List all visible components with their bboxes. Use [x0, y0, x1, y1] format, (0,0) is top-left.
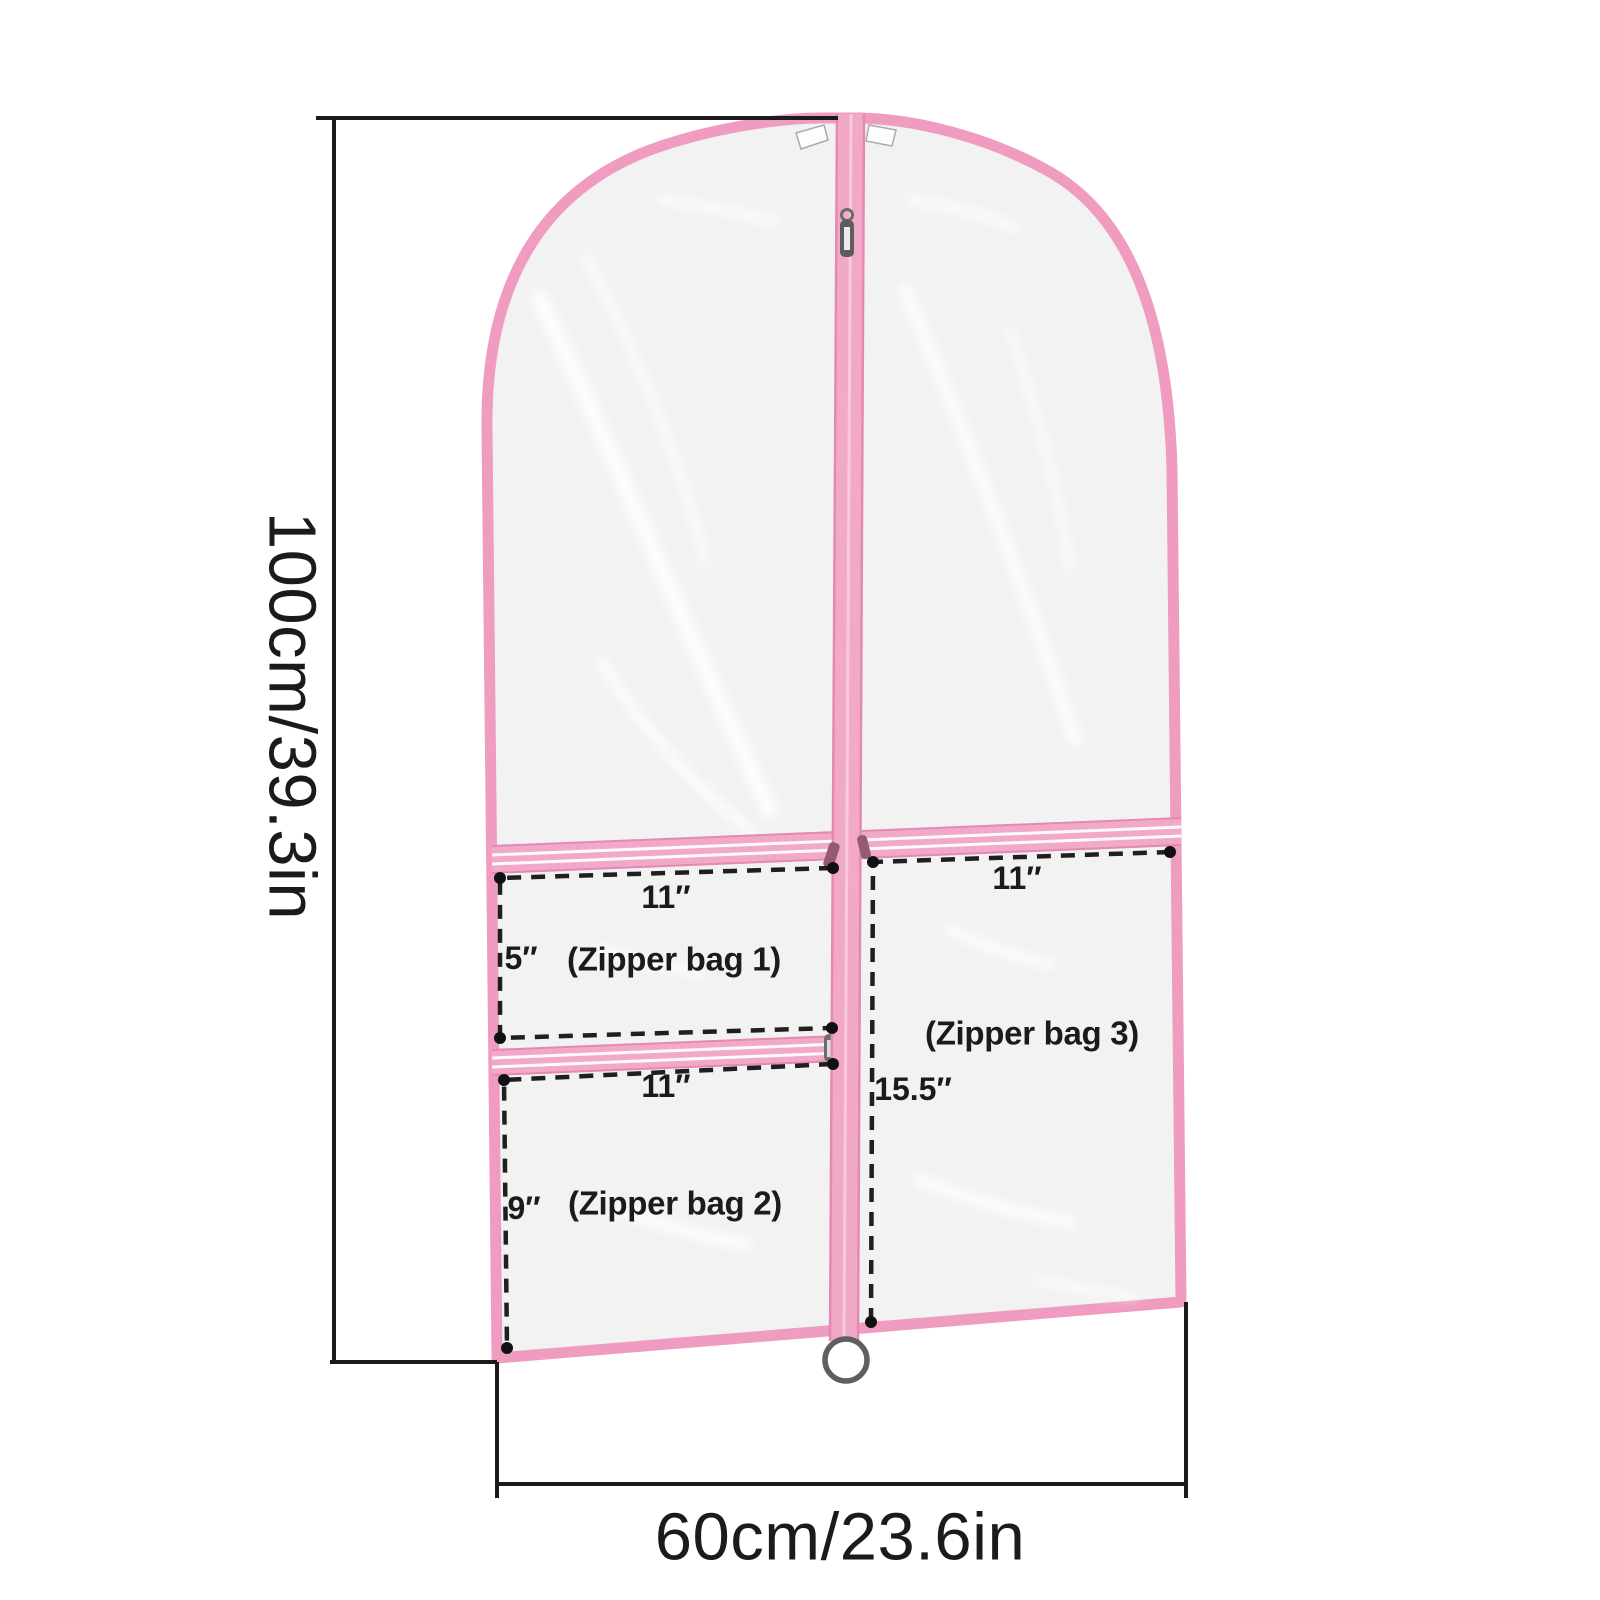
- pocket-3-width-label: 11″: [992, 862, 1041, 894]
- pocket-2-name-label: (Zipper bag 2): [568, 1187, 782, 1220]
- bottom-zipper-ring-pull: [825, 1339, 867, 1381]
- diagram-canvas: [0, 0, 1600, 1600]
- pocket-1-height-label: 5″: [504, 942, 537, 974]
- pocket-1-name-label: (Zipper bag 1): [567, 943, 781, 976]
- pocket-2-width-label: 11″: [641, 1070, 690, 1102]
- width-dimension-label: 60cm/23.6in: [655, 1504, 1026, 1571]
- pocket-3-name-label: (Zipper bag 3): [925, 1017, 1139, 1050]
- pocket-1-width-label: 11″: [641, 881, 690, 913]
- pocket-2-height-label: 9″: [507, 1192, 540, 1224]
- height-dimension-label: 100cm/39.3in: [259, 512, 326, 920]
- pocket-3-height-label: 15.5″: [874, 1073, 952, 1105]
- center-zipper-tape: [830, 114, 864, 1341]
- garment-bag-dimension-diagram: 100cm/39.3in 60cm/23.6in 11″ 5″ (Zipper …: [0, 0, 1600, 1600]
